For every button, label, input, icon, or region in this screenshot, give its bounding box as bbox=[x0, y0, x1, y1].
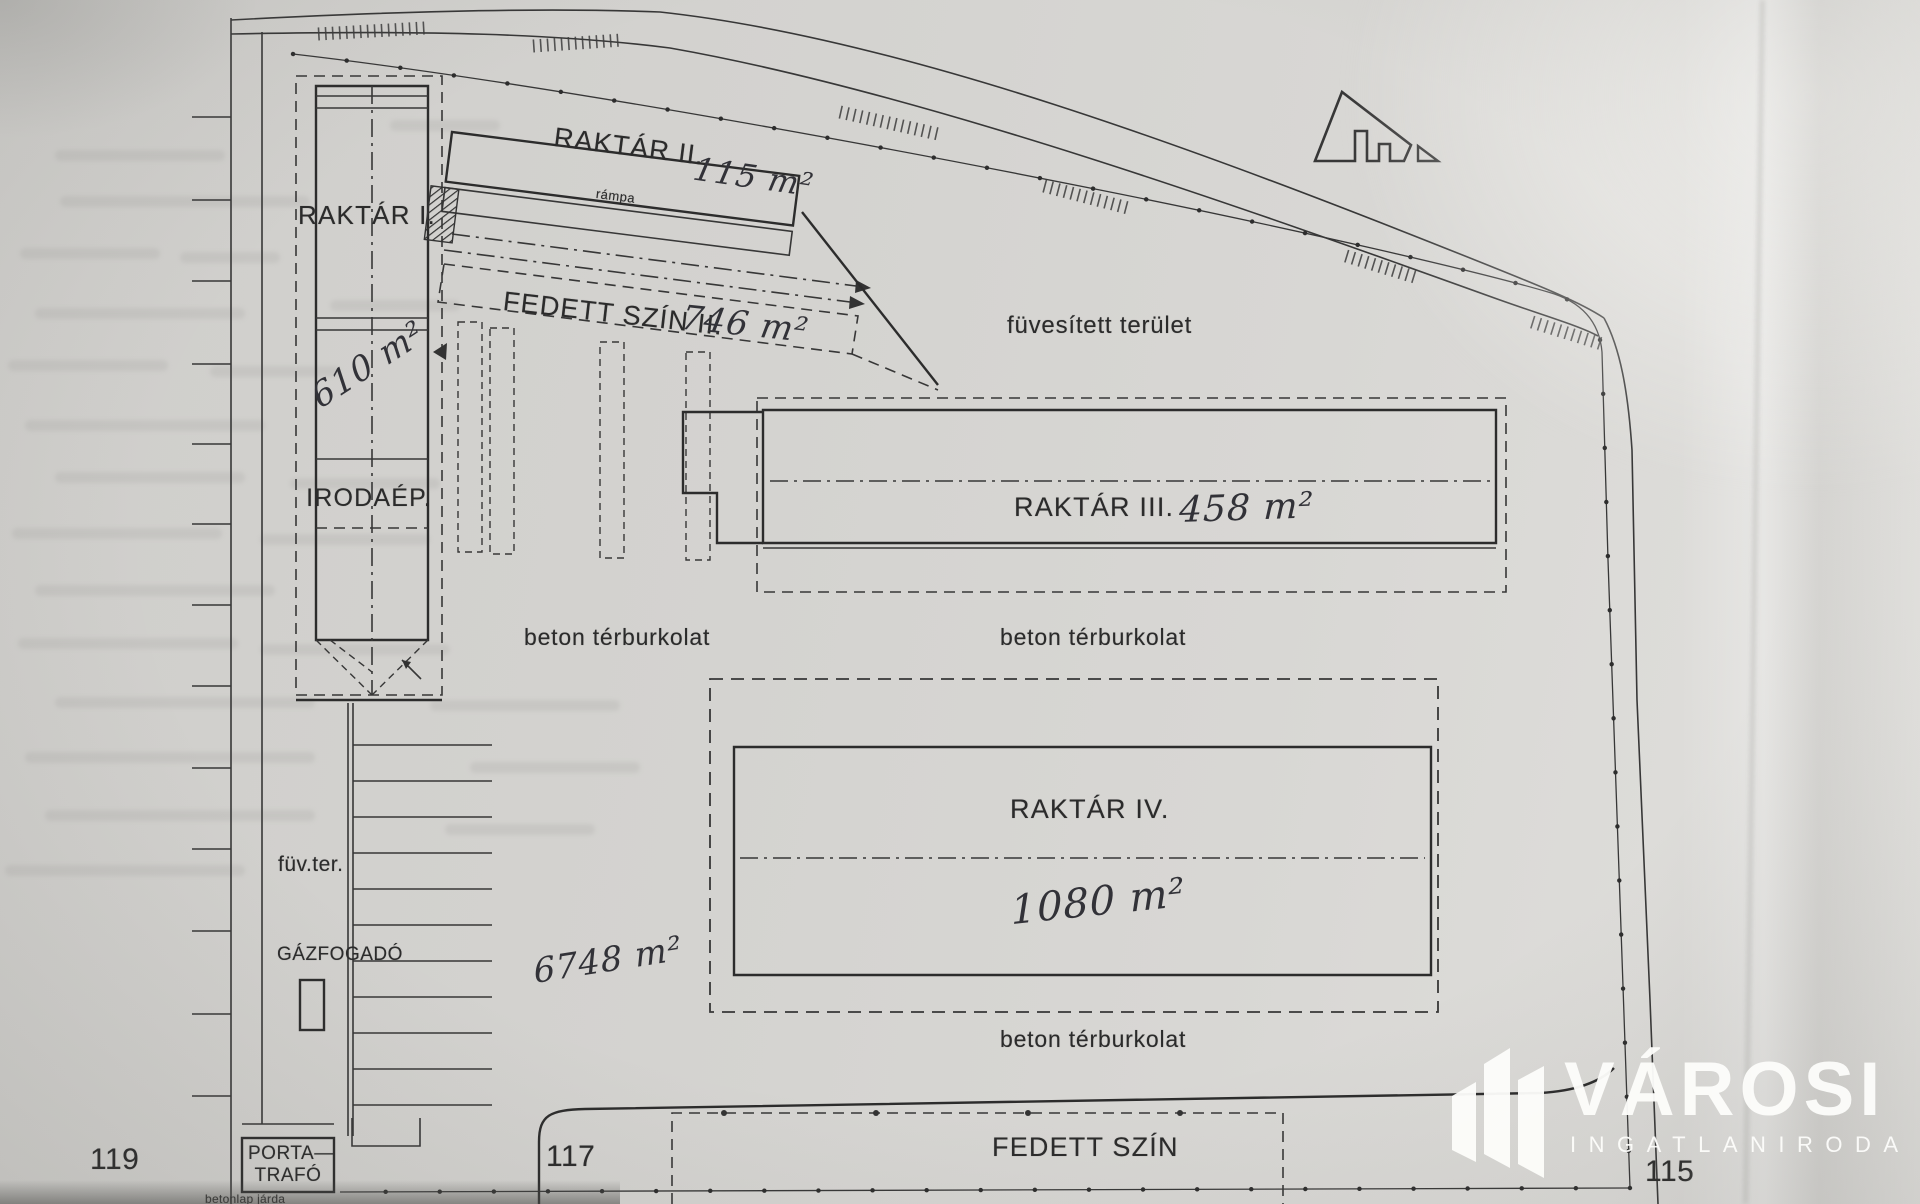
porta-trafo-label: PORTA— TRAFÓ bbox=[248, 1143, 328, 1187]
landmark-symbol bbox=[1315, 92, 1438, 161]
site-plan-scan: RAKTÁR I. IRODAÉP. RAKTÁR II. rámpa FEDE… bbox=[0, 0, 1920, 1204]
fedett-szin2-structure bbox=[438, 212, 938, 560]
watermark-subtitle: INGATLANIRODA bbox=[1570, 1132, 1911, 1158]
gazfogado-label: GÁZFOGADÓ bbox=[277, 944, 403, 966]
raktar3-area-handwritten: 458 m² bbox=[1179, 485, 1315, 531]
parcel-number-117: 117 bbox=[546, 1140, 595, 1174]
fuvesitett-terulet-label: füvesített terület bbox=[1007, 312, 1192, 340]
fuv-ter-label: füv.ter. bbox=[278, 853, 343, 877]
irodaep-label: IRODAÉP. bbox=[300, 484, 438, 513]
fedett-szin-label: FEDETT SZÍN bbox=[992, 1132, 1179, 1163]
beton-terburkolat-label-mid: beton térburkolat bbox=[1000, 624, 1186, 651]
trafo-line: TRAFÓ bbox=[248, 1165, 328, 1187]
raktar4-building bbox=[710, 679, 1438, 1012]
beton-terburkolat-label-bottom: beton térburkolat bbox=[1000, 1026, 1186, 1053]
watermark-name: VÁROSI bbox=[1564, 1052, 1885, 1128]
porta-line: PORTA— bbox=[248, 1143, 328, 1165]
site-plan-drawing bbox=[0, 0, 1920, 1204]
site-boundary bbox=[192, 10, 1658, 1204]
betonlap-jarda-label: betonlap járda bbox=[205, 1192, 285, 1204]
gazfogado-box bbox=[300, 980, 324, 1030]
inner-road-parking bbox=[348, 703, 492, 1136]
varosi-watermark: VÁROSI INGATLANIRODA bbox=[1452, 1040, 1912, 1200]
beton-terburkolat-label-left: beton térburkolat bbox=[524, 624, 710, 651]
fence-line bbox=[293, 28, 1630, 1192]
raktar3-label: RAKTÁR III. bbox=[1014, 492, 1174, 523]
varosi-logo-buildings-icon bbox=[1452, 1046, 1557, 1178]
raktar1-label: RAKTÁR I. bbox=[296, 200, 438, 231]
raktar4-label: RAKTÁR IV. bbox=[1010, 794, 1170, 825]
parcel-number-119: 119 bbox=[90, 1143, 139, 1177]
